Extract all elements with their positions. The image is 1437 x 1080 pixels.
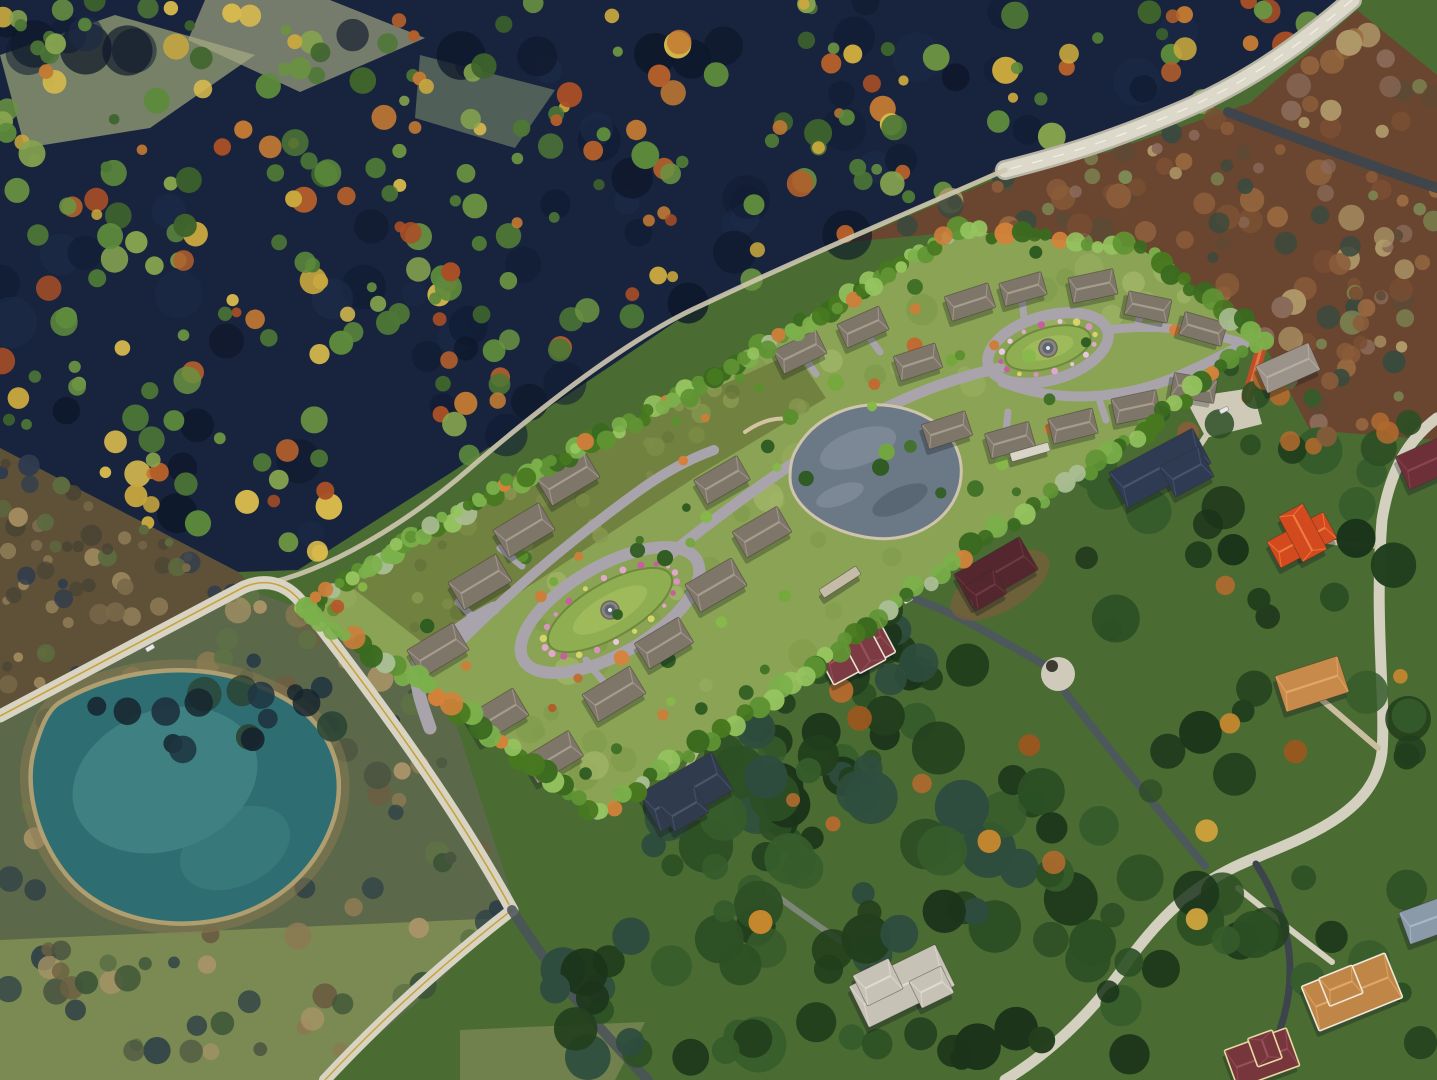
cul-de-sac [1041, 657, 1075, 691]
aerial-photo-canvas [0, 0, 1437, 1080]
aerial-photo [0, 0, 1437, 1080]
cul-de-sac-island [1046, 660, 1058, 672]
